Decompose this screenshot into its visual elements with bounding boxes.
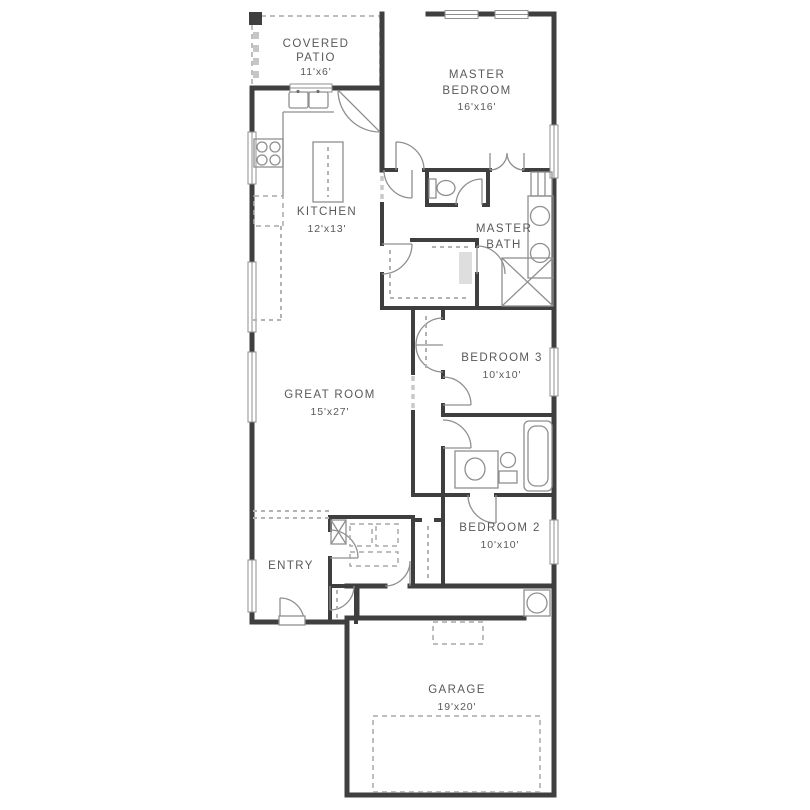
bedroom3-closet-double-door bbox=[416, 318, 443, 372]
floor-plan-page: COVERED PATIO 11'x6' MASTER BEDROOM 16'x… bbox=[0, 0, 810, 810]
bedroom3-door bbox=[443, 377, 471, 405]
master-closet-door bbox=[382, 244, 412, 274]
room-label-great-room: GREAT ROOM bbox=[284, 389, 376, 401]
great-room-detail bbox=[253, 226, 281, 320]
patio-post bbox=[249, 12, 262, 25]
vanity-sink-icon bbox=[531, 207, 550, 226]
room-dims-master-bedroom: 16'x16' bbox=[458, 101, 497, 113]
room-label-bedroom2: BEDROOM 2 bbox=[459, 522, 541, 534]
vanity-sink-icon bbox=[465, 458, 485, 480]
garage-entry-door bbox=[385, 561, 410, 586]
optional-line bbox=[253, 226, 281, 320]
room-dims-bedroom2: 10'x10' bbox=[481, 539, 520, 551]
room-label-master-bedroom: BEDROOM bbox=[442, 85, 511, 97]
exterior-walls bbox=[252, 14, 554, 795]
window bbox=[248, 132, 256, 184]
master-bedroom-door bbox=[396, 142, 424, 170]
bedroom2-door bbox=[468, 495, 496, 523]
toilet-bowl-icon bbox=[437, 181, 455, 196]
room-dims-bedroom3: 10'x10' bbox=[483, 369, 522, 381]
room-dims-garage: 19'x20' bbox=[438, 701, 477, 713]
cased-openings bbox=[382, 176, 413, 410]
faucet-icon bbox=[296, 90, 299, 93]
room-label-entry: ENTRY bbox=[268, 560, 314, 572]
window bbox=[495, 11, 528, 19]
refrigerator-space bbox=[254, 196, 283, 226]
window bbox=[550, 125, 558, 178]
window bbox=[248, 560, 256, 612]
water-heater-icon bbox=[527, 593, 547, 613]
room-label-covered-patio: PATIO bbox=[296, 52, 336, 64]
entry-closet-door bbox=[330, 586, 354, 610]
pantry-door bbox=[338, 90, 380, 132]
counter-edge bbox=[283, 112, 334, 196]
attic-access bbox=[433, 622, 483, 644]
sink-basin-icon bbox=[309, 92, 328, 108]
vanity-sink-icon bbox=[531, 244, 550, 263]
faucet-icon bbox=[316, 90, 319, 93]
water-heater-pad bbox=[524, 590, 550, 616]
room-dims-covered-patio: 11'x6' bbox=[300, 66, 331, 78]
toilet-tank-icon bbox=[499, 471, 517, 483]
window bbox=[248, 352, 256, 422]
master-suite-double-doors bbox=[490, 153, 524, 170]
room-label-master-bedroom: MASTER bbox=[449, 69, 505, 81]
hall-door bbox=[384, 170, 412, 198]
room-label-kitchen: KITCHEN bbox=[297, 206, 357, 218]
ceiling-break-lines bbox=[253, 511, 330, 518]
garage-apron bbox=[373, 716, 540, 792]
window bbox=[550, 348, 558, 396]
vanity bbox=[455, 451, 498, 488]
double-vanity bbox=[528, 196, 553, 278]
linen-shelves bbox=[531, 172, 552, 196]
bath-bench bbox=[459, 252, 472, 284]
floor-plan-svg: COVERED PATIO 11'x6' MASTER BEDROOM 16'x… bbox=[0, 0, 810, 810]
front-door-threshold bbox=[279, 616, 305, 625]
dryer-space bbox=[376, 524, 398, 546]
room-label-master-bath: MASTER bbox=[476, 223, 532, 235]
toilet-tank-icon bbox=[429, 179, 436, 198]
window bbox=[550, 520, 558, 564]
room-label-bedroom3: BEDROOM 3 bbox=[461, 352, 543, 364]
window bbox=[290, 84, 332, 92]
window bbox=[248, 262, 256, 332]
bath2-fixtures bbox=[455, 421, 552, 491]
toilet-bowl-icon bbox=[501, 453, 516, 468]
room-dims-kitchen: 12'x13' bbox=[308, 223, 347, 235]
room-labels: COVERED PATIO 11'x6' MASTER BEDROOM 16'x… bbox=[268, 38, 543, 713]
room-dims-great-room: 15'x27' bbox=[311, 406, 350, 418]
room-label-garage: GARAGE bbox=[428, 684, 486, 696]
room-label-master-bath: BATH bbox=[486, 239, 521, 251]
room-label-covered-patio: COVERED bbox=[283, 38, 350, 50]
water-closet-door bbox=[456, 179, 482, 205]
sink-basin-icon bbox=[289, 92, 308, 108]
bath2-door bbox=[443, 420, 471, 448]
window bbox=[445, 11, 478, 19]
